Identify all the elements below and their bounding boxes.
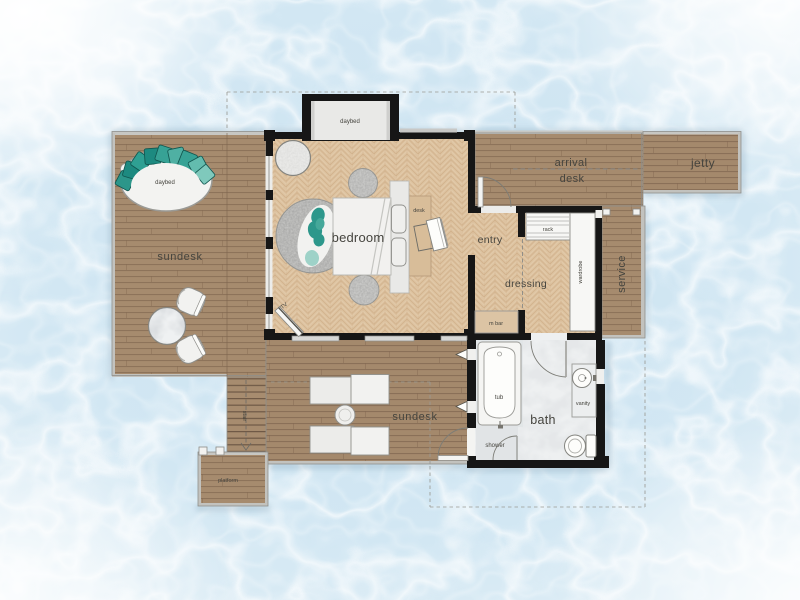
svg-text:sundesk: sundesk (157, 251, 202, 263)
svg-text:sundesk: sundesk (392, 411, 437, 423)
svg-text:desk: desk (560, 173, 585, 185)
svg-text:shower: shower (485, 443, 504, 449)
svg-text:desk: desk (413, 208, 425, 214)
svg-text:m bar: m bar (489, 321, 503, 327)
svg-text:vanity: vanity (576, 401, 591, 407)
svg-text:service: service (616, 255, 628, 293)
svg-text:jetty: jetty (690, 156, 715, 170)
svg-text:entry: entry (478, 234, 503, 246)
svg-text:bath: bath (530, 413, 556, 427)
svg-text:wardrobe: wardrobe (578, 261, 584, 285)
svg-text:stair: stair (241, 411, 247, 422)
svg-text:arrival: arrival (555, 157, 588, 169)
svg-text:rack: rack (543, 227, 554, 233)
svg-text:daybed: daybed (155, 180, 175, 186)
svg-text:bedroom: bedroom (332, 230, 385, 245)
svg-text:tub: tub (495, 395, 504, 401)
svg-text:dressing: dressing (505, 278, 547, 290)
svg-text:daybed: daybed (340, 119, 360, 125)
svg-text:platform: platform (218, 478, 238, 484)
